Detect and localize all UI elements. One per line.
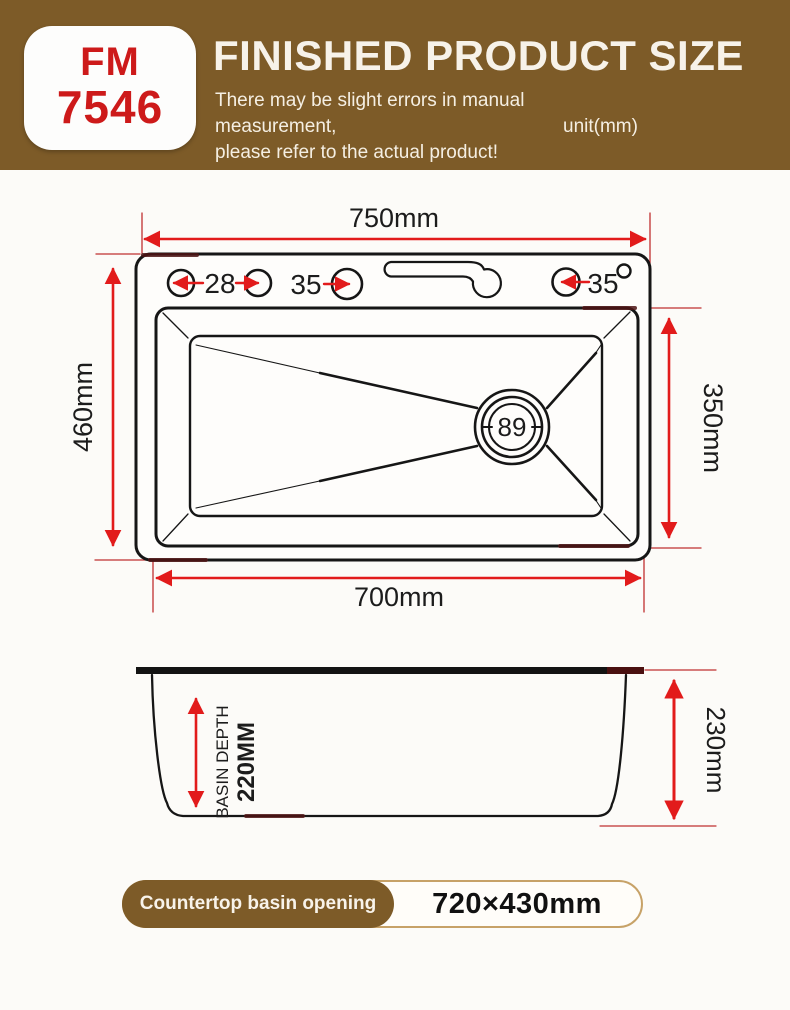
- dim-350-label: 350mm: [698, 383, 728, 473]
- hole-35-middle-label: 35: [290, 269, 321, 300]
- dim-460-label: 460mm: [68, 362, 98, 452]
- drain: 89: [475, 390, 549, 464]
- dim-230-label: 230mm: [701, 707, 731, 794]
- top-view-diagram: 89 28 35 35: [68, 203, 728, 612]
- dimension-diagram: 89 28 35 35: [0, 0, 790, 1010]
- basin-depth-label-line2: 220MM: [233, 722, 260, 802]
- sink-rim-bar-accent: [607, 667, 644, 674]
- side-view-diagram: BASIN DEPTH 220MM 230mm: [136, 667, 731, 826]
- extension-lines-side-view: [600, 670, 716, 826]
- sink-rim-bar: [136, 667, 644, 674]
- hole-35-right-label: 35: [587, 268, 618, 299]
- badge-value: 720×430mm: [394, 882, 640, 926]
- countertop-opening-badge: Countertop basin opening 720×430mm: [122, 880, 643, 928]
- hole-28-label: 28: [204, 268, 235, 299]
- basin-depth-label-line1: BASIN DEPTH: [213, 705, 232, 818]
- sink-outer-outline: [136, 254, 650, 560]
- dim-700-label: 700mm: [354, 582, 444, 612]
- badge-label: Countertop basin opening: [122, 880, 394, 928]
- dim-750-label: 750mm: [349, 203, 439, 233]
- drain-diameter-label: 89: [498, 412, 527, 442]
